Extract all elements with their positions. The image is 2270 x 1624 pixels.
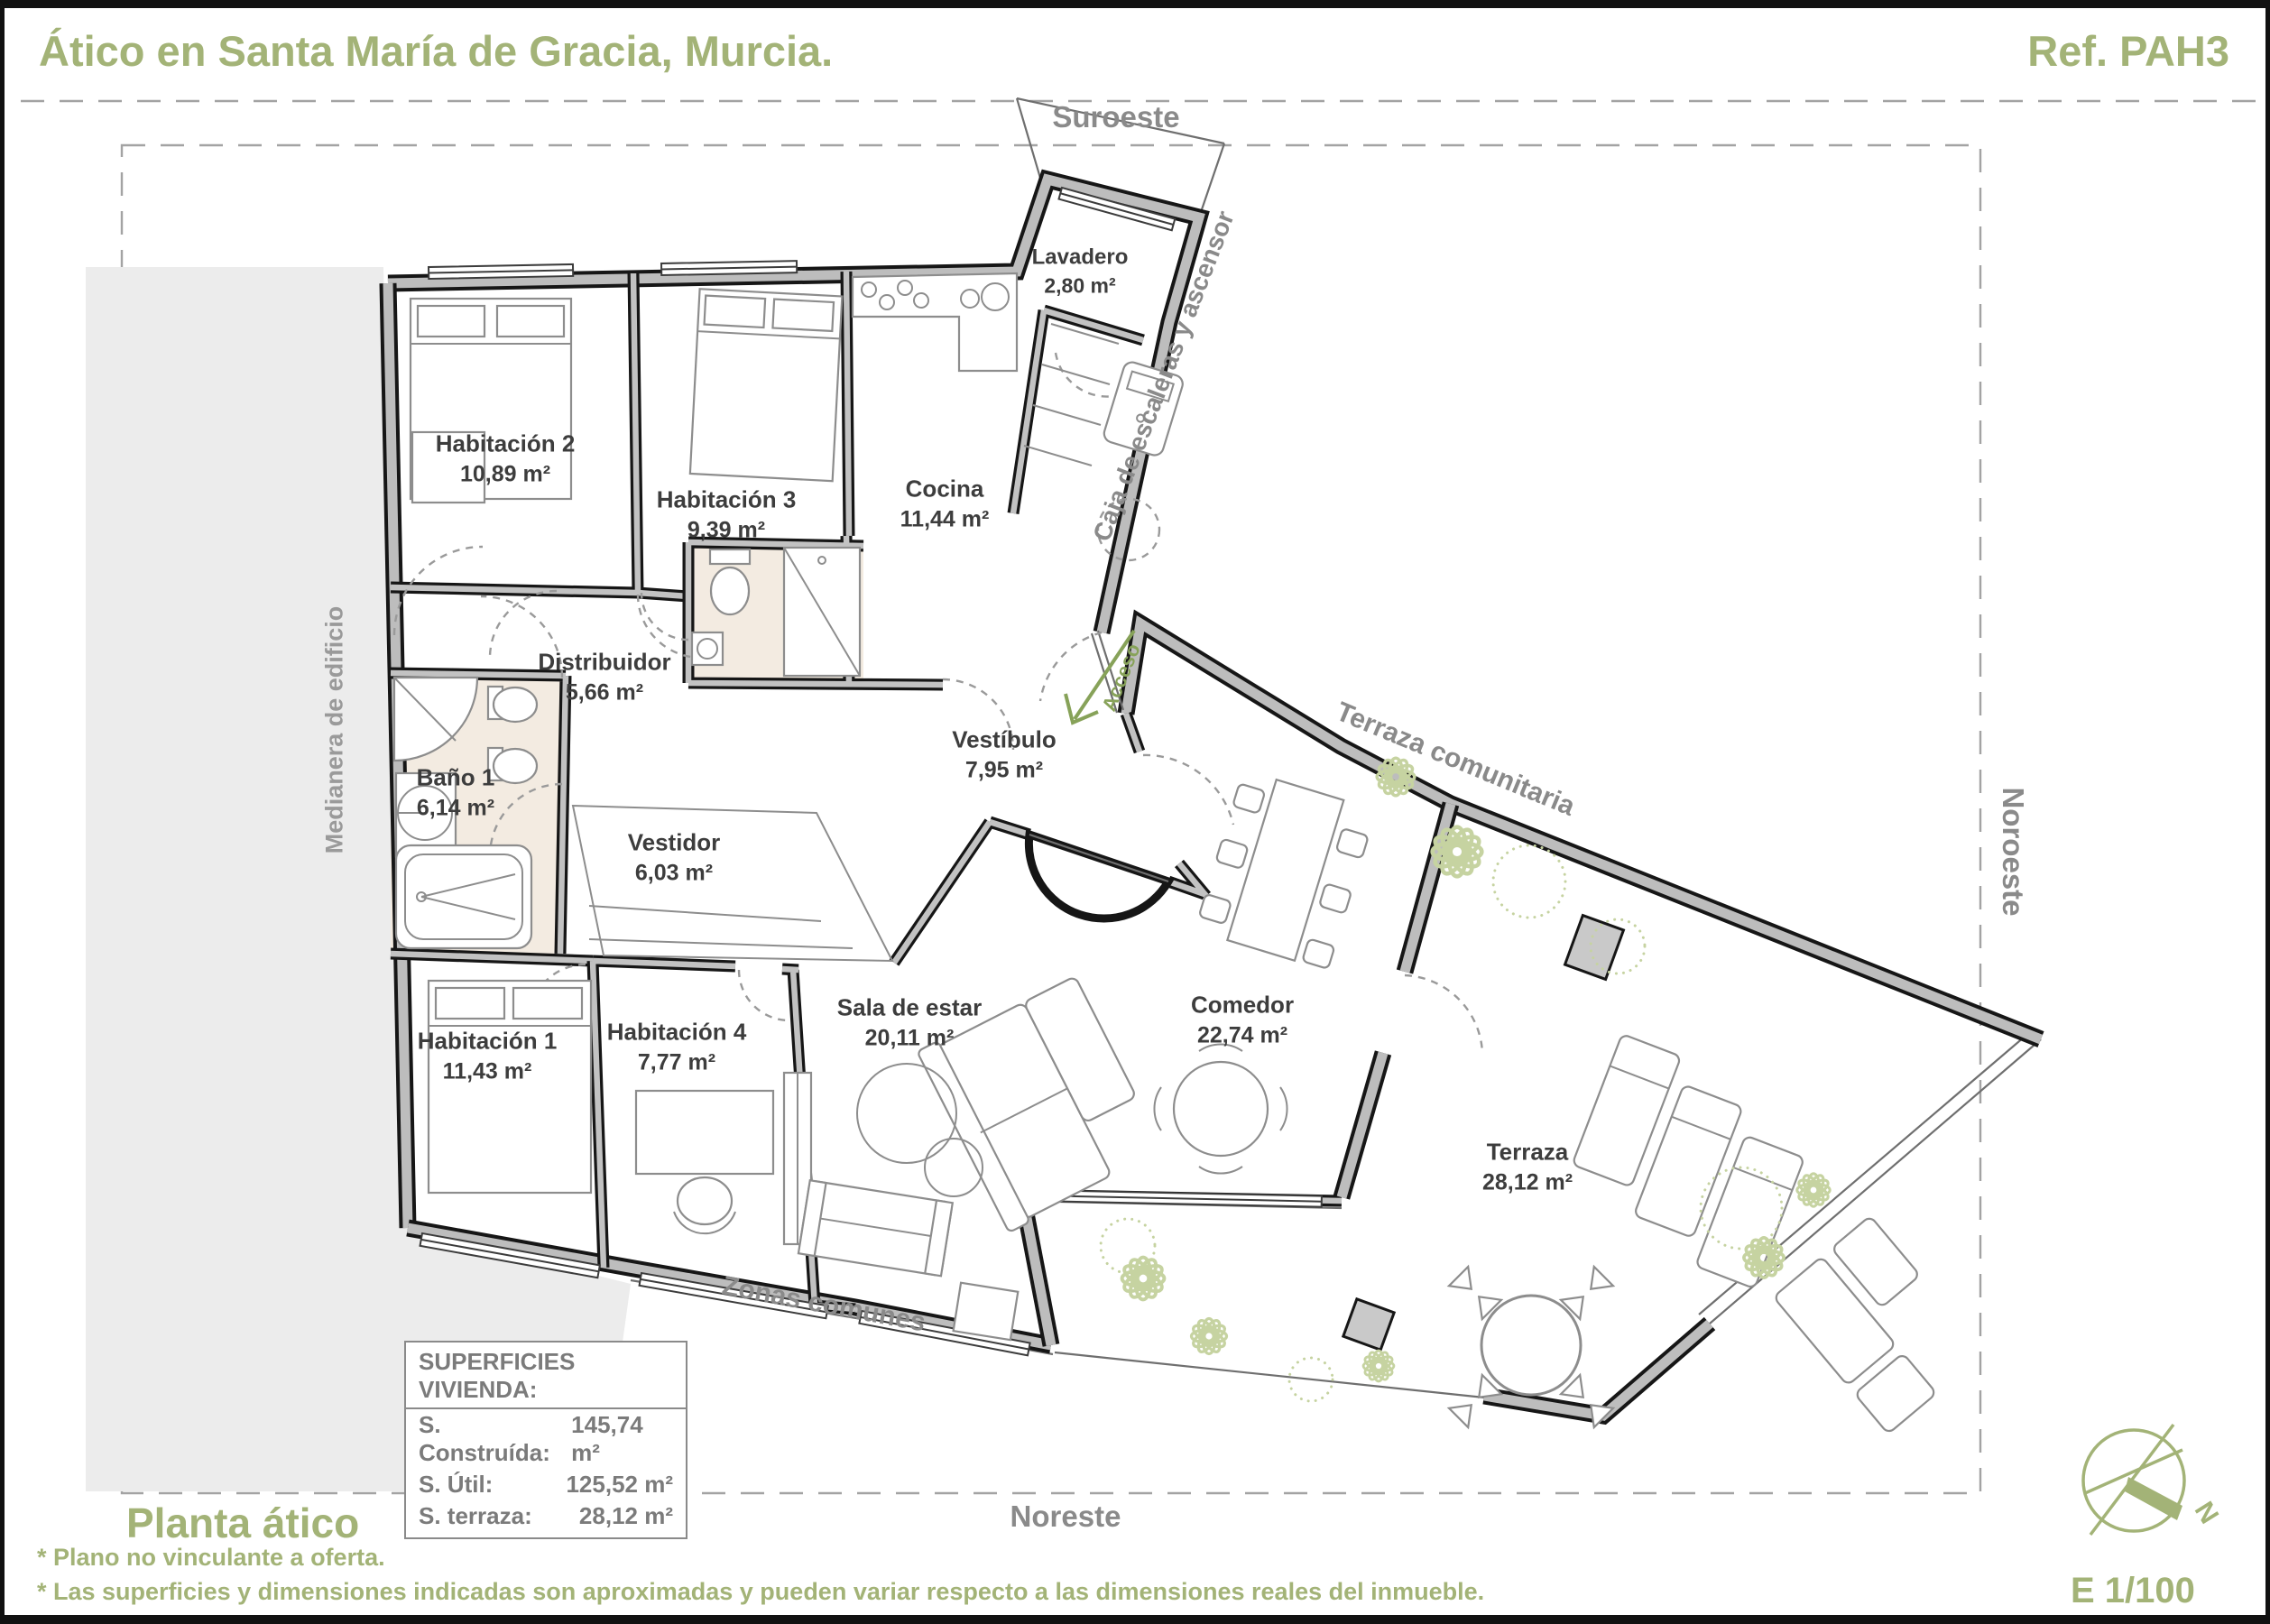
reference-code: Ref. PAH3 [2027,26,2229,76]
orientation-top: Suroeste [1052,100,1179,134]
room-label-bano-1: Baño 16,14 m² [417,762,495,825]
room-label-comedor: Comedor22,74 m² [1191,990,1294,1052]
room-label-habitacion-2: Habitación 210,89 m² [436,429,576,491]
room-label-vestidor: Vestidor6,03 m² [628,827,721,890]
room-label-lavadero: Lavadero2,80 m² [1032,243,1129,300]
room-label-terraza: Terraza28,12 m² [1482,1137,1573,1199]
compass-icon [2083,1425,2184,1535]
orientation-bottom: Noreste [1010,1499,1121,1534]
room-label-vestibulo: Vestíbulo7,95 m² [952,724,1057,787]
areas-table-row: S. terraza:28,12 m² [406,1500,686,1537]
room-label-distribuidor: Distribuidor5,66 m² [538,647,670,709]
plan-name: Planta ático [126,1499,359,1547]
areas-table-title: SUPERFICIES VIVIENDA: [406,1343,686,1409]
footnote-2: * Las superficies y dimensiones indicada… [37,1576,1484,1609]
orientation-right: Noroeste [1996,787,2030,916]
room-label-habitacion-3: Habitación 39,39 m² [657,484,797,547]
room-label-habitacion-4: Habitación 47,77 m² [607,1017,747,1079]
room-label-cocina: Cocina11,44 m² [900,474,990,536]
party-wall-label: Medianera de edificio [321,606,349,854]
room-label-habitacion-1: Habitación 111,43 m² [418,1026,558,1088]
areas-table-row: S. Útil:125,52 m² [406,1469,686,1500]
room-label-sala-de-estar: Sala de estar20,11 m² [837,992,982,1055]
floorplan-page: Ático en Santa María de Gracia, Murcia. … [0,0,2270,1624]
scale-label: E 1/100 [2071,1571,2195,1611]
areas-table-row: S. Construída:145,74 m² [406,1409,686,1469]
areas-table: SUPERFICIES VIVIENDA: S. Construída:145,… [404,1341,687,1539]
entry-arc-wall [1029,835,1168,918]
footnote-1: * Plano no vinculante a oferta. [37,1542,385,1574]
page-title: Ático en Santa María de Gracia, Murcia. [39,26,833,76]
